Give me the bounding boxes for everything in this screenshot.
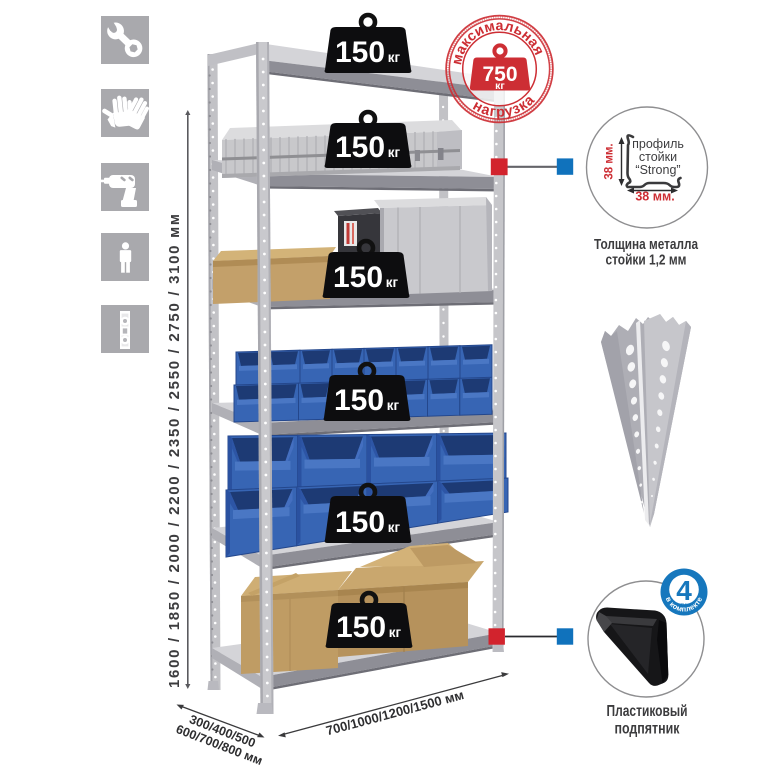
svg-text:4: 4 [676, 575, 692, 606]
svg-text:150: 150 [335, 131, 385, 164]
svg-text:150: 150 [336, 611, 386, 644]
svg-text:кг: кг [388, 50, 401, 65]
svg-text:стойки: стойки [639, 150, 677, 164]
svg-text:кг: кг [387, 398, 400, 413]
svg-text:кг: кг [388, 520, 401, 535]
svg-text:кг: кг [386, 275, 399, 290]
svg-text:кг: кг [389, 625, 402, 640]
svg-text:кг: кг [495, 80, 505, 92]
svg-text:подпятник: подпятник [615, 721, 680, 738]
svg-text:“Strong”: “Strong” [635, 163, 680, 177]
svg-text:кг: кг [388, 145, 401, 160]
svg-text:1600 / 1850 / 2000 / 2200 / 23: 1600 / 1850 / 2000 / 2200 / 2350 / 2550 … [166, 214, 183, 688]
svg-text:Толщина металла: Толщина металла [594, 236, 699, 253]
svg-text:150: 150 [333, 261, 383, 294]
svg-text:150: 150 [335, 36, 385, 69]
svg-text:38 мм.: 38 мм. [604, 143, 616, 179]
svg-text:150: 150 [334, 384, 384, 417]
svg-text:38 мм.: 38 мм. [635, 190, 674, 204]
svg-text:150: 150 [335, 506, 385, 539]
svg-text:профиль: профиль [632, 137, 684, 151]
svg-text:Пластиковый: Пластиковый [607, 703, 688, 720]
svg-text:стойки 1,2 мм: стойки 1,2 мм [606, 252, 687, 269]
svg-text:700/1000/1200/1500 мм: 700/1000/1200/1500 мм [324, 687, 465, 738]
